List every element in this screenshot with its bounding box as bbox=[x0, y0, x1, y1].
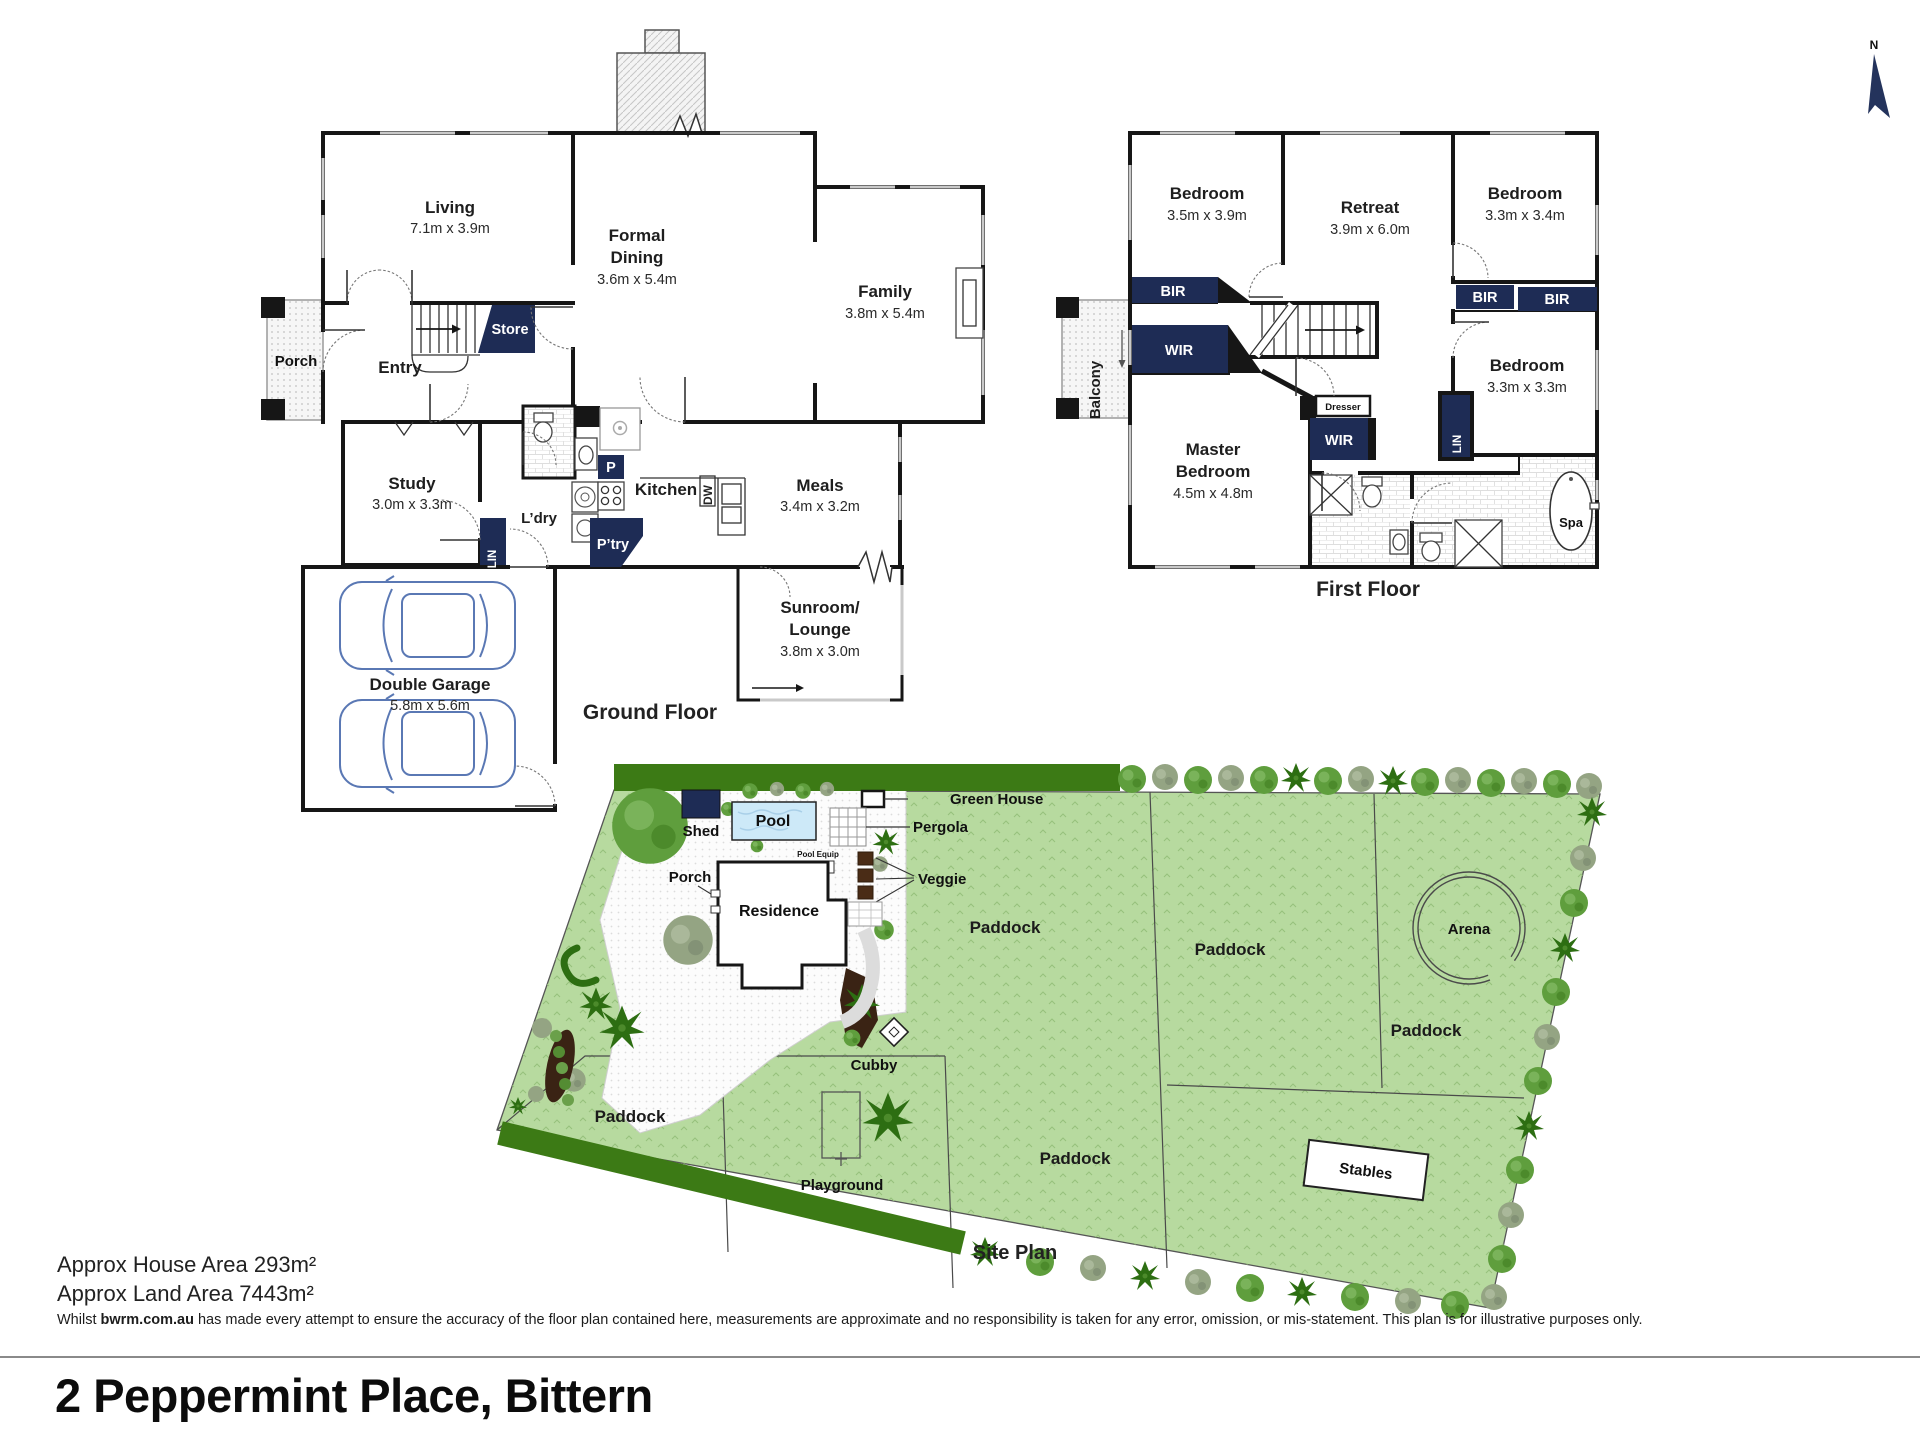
paddock-label: Paddock bbox=[970, 918, 1041, 937]
spa-bath-icon bbox=[1550, 472, 1592, 550]
bed1-label: Bedroom bbox=[1170, 184, 1245, 203]
pool-equip-label: Pool Equip bbox=[797, 850, 839, 859]
garage-dims: 5.8m x 5.6m bbox=[390, 698, 470, 714]
north-arrow-icon: N bbox=[1868, 38, 1890, 118]
store-label: Store bbox=[491, 322, 528, 338]
wir-2-label: WIR bbox=[1325, 433, 1354, 449]
bed1-dims: 3.5m x 3.9m bbox=[1167, 208, 1247, 224]
basin-icon bbox=[1393, 534, 1405, 550]
bed2-label: Bedroom bbox=[1488, 184, 1563, 203]
bed2-dims: 3.3m x 3.4m bbox=[1485, 208, 1565, 224]
sunroom-label-2: Lounge bbox=[789, 620, 850, 639]
green-house bbox=[862, 791, 884, 807]
residence-label: Residence bbox=[739, 903, 819, 920]
family-dims: 3.8m x 5.4m bbox=[845, 306, 925, 322]
study-label: Study bbox=[388, 474, 436, 493]
site-porch-label: Porch bbox=[669, 869, 712, 886]
toilet-icon bbox=[1363, 485, 1381, 507]
dining-dims: 3.6m x 5.4m bbox=[597, 272, 677, 288]
bed3-dims: 3.3m x 3.3m bbox=[1487, 380, 1567, 396]
land-area-text: Approx Land Area 7443m² bbox=[57, 1281, 314, 1307]
house-area-text: Approx House Area 293m² bbox=[57, 1252, 316, 1278]
ground-floor-plan: Store P LIN P’try bbox=[261, 30, 983, 810]
living-label: Living bbox=[425, 198, 475, 217]
kitchen-label: Kitchen bbox=[635, 480, 697, 499]
disclaimer-text: Whilst bwrm.com.au has made every attemp… bbox=[57, 1312, 1867, 1328]
fireplace-icon bbox=[956, 268, 983, 338]
dresser-label: Dresser bbox=[1325, 402, 1361, 413]
ground-floor-caption: Ground Floor bbox=[583, 701, 717, 724]
lin-first-label: LIN bbox=[1452, 435, 1464, 454]
floorplan-page: Store P LIN P’try bbox=[0, 0, 1920, 1440]
disclaimer-pre: Whilst bbox=[57, 1312, 101, 1328]
sink-icon bbox=[722, 484, 741, 504]
laundry-label: L’dry bbox=[521, 510, 558, 527]
staircase-ground bbox=[412, 303, 480, 372]
porch-label: Porch bbox=[275, 353, 318, 370]
bir-1-label: BIR bbox=[1161, 284, 1187, 300]
dining-label-1: Formal bbox=[609, 226, 666, 245]
staircase-first bbox=[1250, 305, 1370, 355]
floorplan-drawing: Store P LIN P’try bbox=[0, 0, 1920, 1440]
dining-label-2: Dining bbox=[611, 248, 664, 267]
sunroom-label-1: Sunroom/ bbox=[780, 598, 860, 617]
dw-label: DW bbox=[701, 484, 715, 505]
living-dims: 7.1m x 3.9m bbox=[410, 221, 490, 237]
meals-dims: 3.4m x 3.2m bbox=[780, 499, 860, 515]
wir-1-label: WIR bbox=[1165, 343, 1194, 359]
retreat-label: Retreat bbox=[1341, 198, 1400, 217]
toilet-icon bbox=[1422, 541, 1440, 561]
shed bbox=[682, 790, 720, 818]
pantry-label: P’try bbox=[597, 537, 629, 553]
green-house-label: Green House bbox=[950, 791, 1043, 808]
retreat-dims: 3.9m x 6.0m bbox=[1330, 222, 1410, 238]
toilet-icon bbox=[534, 422, 552, 442]
balcony-label: Balcony bbox=[1087, 360, 1104, 419]
site-plan: Shed Pool Green House Pergola Pool Equip… bbox=[497, 763, 1607, 1319]
disclaimer-post: has made every attempt to ensure the acc… bbox=[194, 1312, 1643, 1328]
basin-icon bbox=[579, 446, 593, 464]
master-label-2: Bedroom bbox=[1176, 462, 1251, 481]
paddock-label: Paddock bbox=[1195, 940, 1266, 959]
paddock-label: Paddock bbox=[1040, 1149, 1111, 1168]
site-plan-caption: Site Plan bbox=[973, 1242, 1057, 1264]
master-dims: 4.5m x 4.8m bbox=[1173, 486, 1253, 502]
first-floor-plan: BIR WIR BIR BIR LIN Dresser WIR bbox=[1056, 133, 1599, 601]
chimney-icon bbox=[645, 30, 679, 53]
sunroom-dims: 3.8m x 3.0m bbox=[780, 644, 860, 660]
master-label-1: Master bbox=[1186, 440, 1241, 459]
paddock-label: Paddock bbox=[1391, 1021, 1462, 1040]
car-icon bbox=[340, 576, 515, 675]
garage-label: Double Garage bbox=[370, 675, 491, 694]
veggie-label: Veggie bbox=[918, 871, 966, 888]
spa-label: Spa bbox=[1559, 515, 1584, 530]
disclaimer-brand: bwrm.com.au bbox=[101, 1312, 194, 1328]
entry-label: Entry bbox=[378, 358, 422, 377]
shed-label: Shed bbox=[683, 823, 720, 840]
pool-label: Pool bbox=[756, 813, 791, 830]
hedge-top bbox=[614, 764, 1120, 791]
meals-label: Meals bbox=[796, 476, 843, 495]
cubby-label: Cubby bbox=[851, 1057, 898, 1074]
family-label: Family bbox=[858, 282, 912, 301]
arena-label: Arena bbox=[1448, 921, 1491, 938]
divider-rule bbox=[0, 1356, 1920, 1358]
lin-ground-label: LIN bbox=[487, 550, 499, 569]
paddock-label: Paddock bbox=[595, 1107, 666, 1126]
bir-3-label: BIR bbox=[1545, 292, 1571, 308]
bir-2-label: BIR bbox=[1473, 290, 1499, 306]
bed3-label: Bedroom bbox=[1490, 356, 1565, 375]
page-title: 2 Peppermint Place, Bittern bbox=[55, 1368, 653, 1423]
pergola-label: Pergola bbox=[913, 819, 969, 836]
study-dims: 3.0m x 3.3m bbox=[372, 497, 452, 513]
playground-label: Playground bbox=[801, 1177, 884, 1194]
powder-label: P bbox=[606, 460, 616, 476]
north-label: N bbox=[1870, 38, 1879, 52]
first-floor-caption: First Floor bbox=[1316, 578, 1420, 601]
